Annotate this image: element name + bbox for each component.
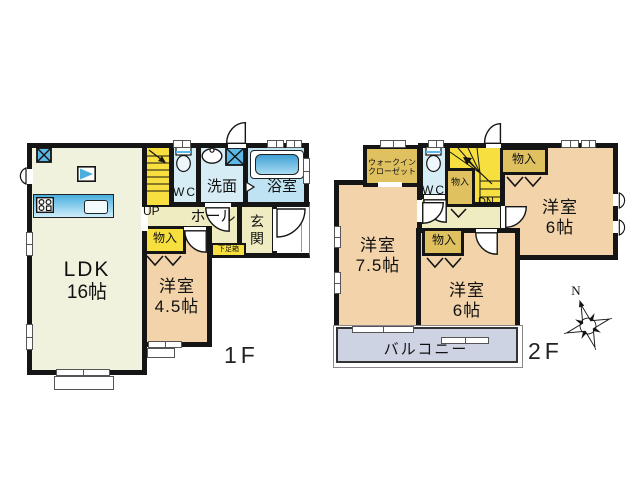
- bath-door-icon: [245, 181, 255, 193]
- label-balcony: バルコニー: [356, 341, 496, 358]
- window: [26, 324, 33, 350]
- label-closet-stair: 物入: [447, 177, 473, 187]
- label-bathroom: 浴室: [260, 178, 304, 195]
- casement-window-icon: [14, 167, 27, 185]
- window-slider: [352, 326, 414, 333]
- door-arc-entrance: [276, 208, 306, 238]
- casement-window-icon: [618, 192, 631, 209]
- label-wc-2f: WC: [420, 184, 448, 198]
- window: [286, 140, 302, 148]
- window: [581, 140, 596, 148]
- kitchen-sink-icon: [84, 200, 108, 214]
- floor-plan-canvas: LDK 16帖 洋室 4.5帖 WC 洗面 浴室 ホール UP 玄関 物入 下足…: [0, 0, 640, 480]
- label-closet-mid: 物入: [426, 234, 462, 248]
- stove-icon: [36, 197, 54, 213]
- room-name: 洋室: [336, 236, 420, 256]
- room-name: 洋室: [422, 281, 512, 301]
- door-gap: [228, 144, 246, 148]
- label-walk-in-closet: ウォークイン クローゼット: [364, 158, 420, 176]
- window: [267, 140, 284, 148]
- window-bay: [147, 348, 175, 358]
- room-name: 洋室: [142, 277, 212, 297]
- room-name: LDK: [47, 258, 127, 282]
- window: [380, 140, 406, 148]
- room-size: 4.5帖: [142, 297, 212, 317]
- room-size: 6帖: [515, 218, 605, 238]
- bathtub-icon: [250, 150, 304, 179]
- window: [56, 369, 110, 376]
- label-bedroom6-east: 洋室 6帖: [515, 198, 605, 237]
- tv-board-icon: [77, 166, 96, 182]
- wic-line1: ウォークイン: [364, 158, 420, 167]
- room-size: 16帖: [47, 282, 127, 304]
- toilet-icon-2f: [425, 146, 442, 173]
- label-closet-top: 物入: [506, 153, 542, 167]
- door-arc-back-entry: [226, 122, 246, 144]
- stairs-1f-treads-icon: [147, 148, 169, 201]
- closet-stair-2f: [445, 168, 475, 207]
- label-washroom: 洗面: [200, 178, 244, 195]
- label-up: UP: [143, 205, 171, 219]
- washing-machine-icon: [225, 147, 245, 166]
- label-hall: ホール: [186, 208, 240, 225]
- door-arc-bedroom75: [422, 202, 444, 224]
- window: [303, 158, 310, 184]
- basin-icon: [201, 147, 223, 164]
- toilet-icon-1f: [175, 146, 192, 173]
- window: [428, 140, 444, 148]
- wic-line2: クローゼット: [364, 167, 420, 176]
- label-entrance: 玄関: [249, 210, 265, 252]
- label-bedroom45: 洋室 4.5帖: [142, 277, 212, 316]
- label-wc-1f: WC: [171, 186, 199, 200]
- window: [26, 232, 33, 256]
- window: [334, 272, 341, 294]
- folding-door-icon: [505, 176, 543, 187]
- window-gap: [26, 169, 33, 184]
- room-size: 6帖: [422, 301, 512, 321]
- casement-window-icon: [618, 219, 631, 236]
- window-bay: [54, 376, 114, 390]
- door-arc-top-2f: [484, 123, 501, 144]
- window: [561, 140, 579, 148]
- room-name: 洋室: [515, 198, 605, 218]
- floor2-tag: 2F: [528, 338, 563, 365]
- label-shoe-box: 下足箱: [212, 246, 245, 254]
- refrigerator-icon: [36, 147, 52, 163]
- compass-rose-icon: [560, 296, 616, 356]
- folding-door-icon: [450, 208, 467, 218]
- room-size: 7.5帖: [336, 256, 420, 276]
- door-gap: [486, 144, 501, 148]
- bathtub-inner: [255, 154, 299, 175]
- door-arc-bedroom6-south: [475, 232, 498, 255]
- folding-door-icon: [426, 257, 462, 268]
- window: [148, 341, 182, 348]
- folding-door-icon: [146, 255, 182, 266]
- window: [173, 140, 191, 148]
- label-closet-1f: 物入: [147, 232, 183, 246]
- label-ldk: LDK 16帖: [47, 258, 127, 304]
- label-bedroom75: 洋室 7.5帖: [336, 236, 420, 275]
- door-arc-bedroom45: [184, 230, 207, 253]
- label-dn: DN: [472, 196, 500, 209]
- label-bedroom6-south: 洋室 6帖: [422, 281, 512, 320]
- floor1-tag: 1F: [224, 342, 259, 369]
- door-gap: [378, 182, 402, 187]
